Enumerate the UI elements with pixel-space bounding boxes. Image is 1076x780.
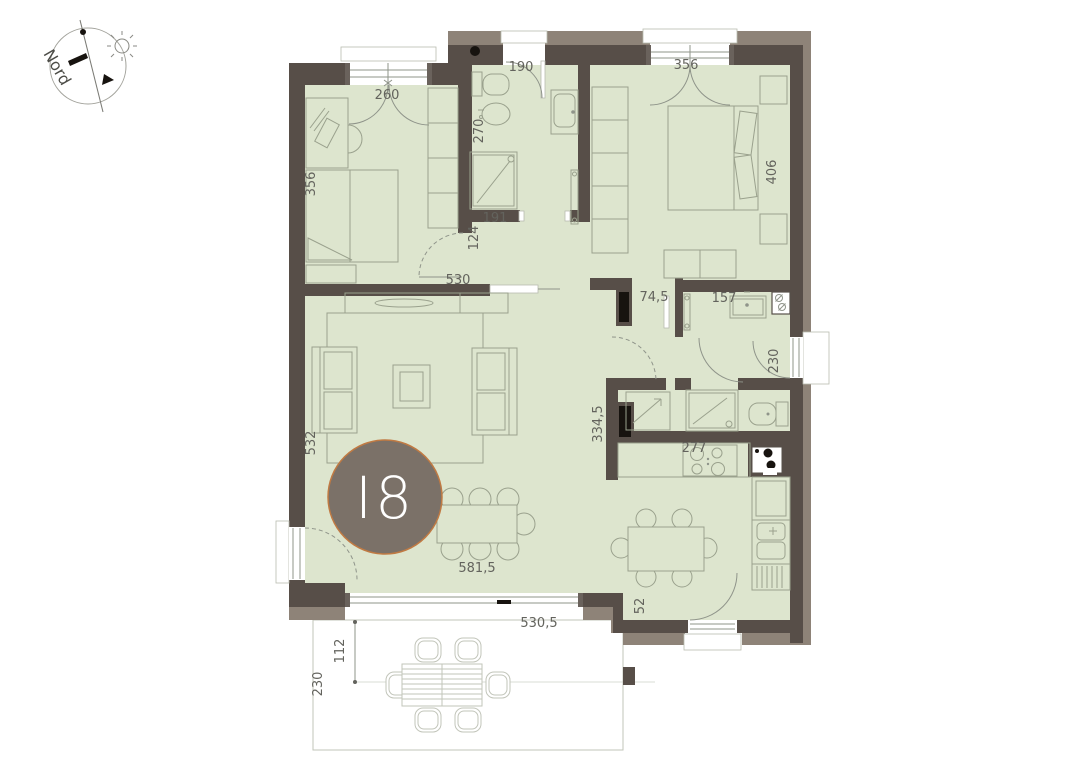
terrace-pillar [623, 667, 635, 685]
unit-badge: I8 [328, 440, 442, 554]
dimension-label: 230 [311, 672, 326, 697]
dimension-label: 270 [472, 119, 487, 144]
floor-plan: 26035619027035640612419153074,5157230334… [0, 0, 1076, 780]
terrace [313, 620, 655, 750]
compass-needle [68, 53, 88, 66]
living-room-window [345, 593, 583, 607]
terrace-dimension-line [353, 620, 357, 684]
north-compass-icon: Nord [40, 20, 137, 112]
dimension-label: 406 [765, 160, 780, 185]
unit-badge-label: I8 [355, 464, 415, 532]
terrace-table-icon [386, 638, 510, 732]
dimension-label: 334,5 [591, 405, 606, 442]
pocket-door-bedroom2 [619, 292, 629, 322]
dimension-label: 112 [333, 639, 348, 664]
dimension-label: 532 [304, 431, 319, 456]
bed-icon [306, 170, 398, 262]
dimension-label: 356 [674, 58, 699, 73]
dimension-label: 157 [712, 291, 737, 306]
dimension-label: 230 [767, 349, 782, 374]
dimension-label: 277 [682, 441, 707, 456]
dimension-label: 530,5 [520, 616, 557, 631]
dimension-label: 356 [304, 172, 319, 197]
dimension-label: 74,5 [640, 290, 669, 305]
kitchen-shaft-icon [752, 447, 782, 475]
double-bed-icon [668, 106, 758, 210]
dimension-label: 190 [509, 60, 534, 75]
shaft-icon [772, 292, 790, 314]
sofa-icon [312, 347, 357, 433]
sun-icon [107, 31, 137, 61]
compass-arrow [102, 74, 114, 85]
sofa-icon [472, 348, 517, 435]
dimension-label: 52 [633, 598, 648, 615]
dimension-label: 124 [467, 226, 482, 251]
dimension-label: 260 [375, 88, 400, 103]
dimension-label: 530 [446, 273, 471, 288]
dimension-label: 191 [483, 211, 508, 226]
dimension-label: 581,5 [458, 561, 495, 576]
bathroom1-lower-doorway [519, 210, 570, 222]
floor-plan-canvas: 26035619027035640612419153074,5157230334… [0, 0, 1076, 780]
wall-dot-marker [470, 46, 480, 56]
pocket-door-kitchen [619, 406, 631, 437]
north-label: Nord [40, 46, 76, 89]
